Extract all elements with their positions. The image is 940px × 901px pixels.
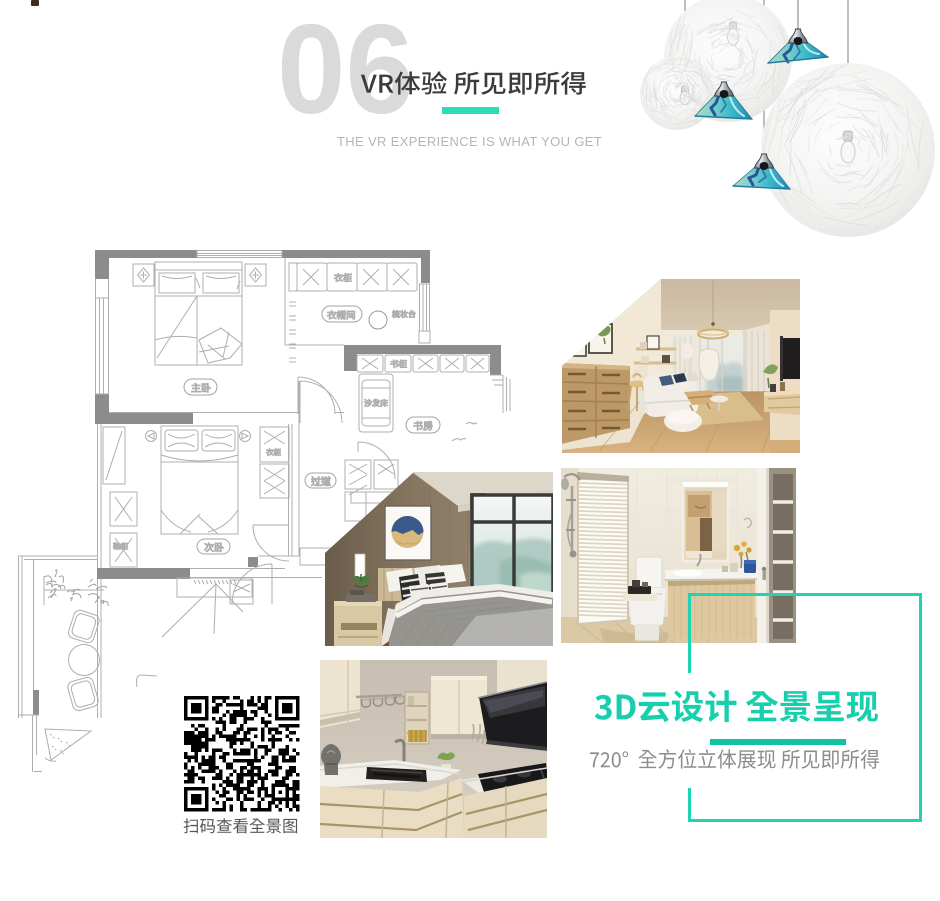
svg-text:06: 06 [277,0,414,140]
svg-text:THE VR EXPERIENCE IS WHAT YOU: THE VR EXPERIENCE IS WHAT YOU GET [337,134,602,149]
